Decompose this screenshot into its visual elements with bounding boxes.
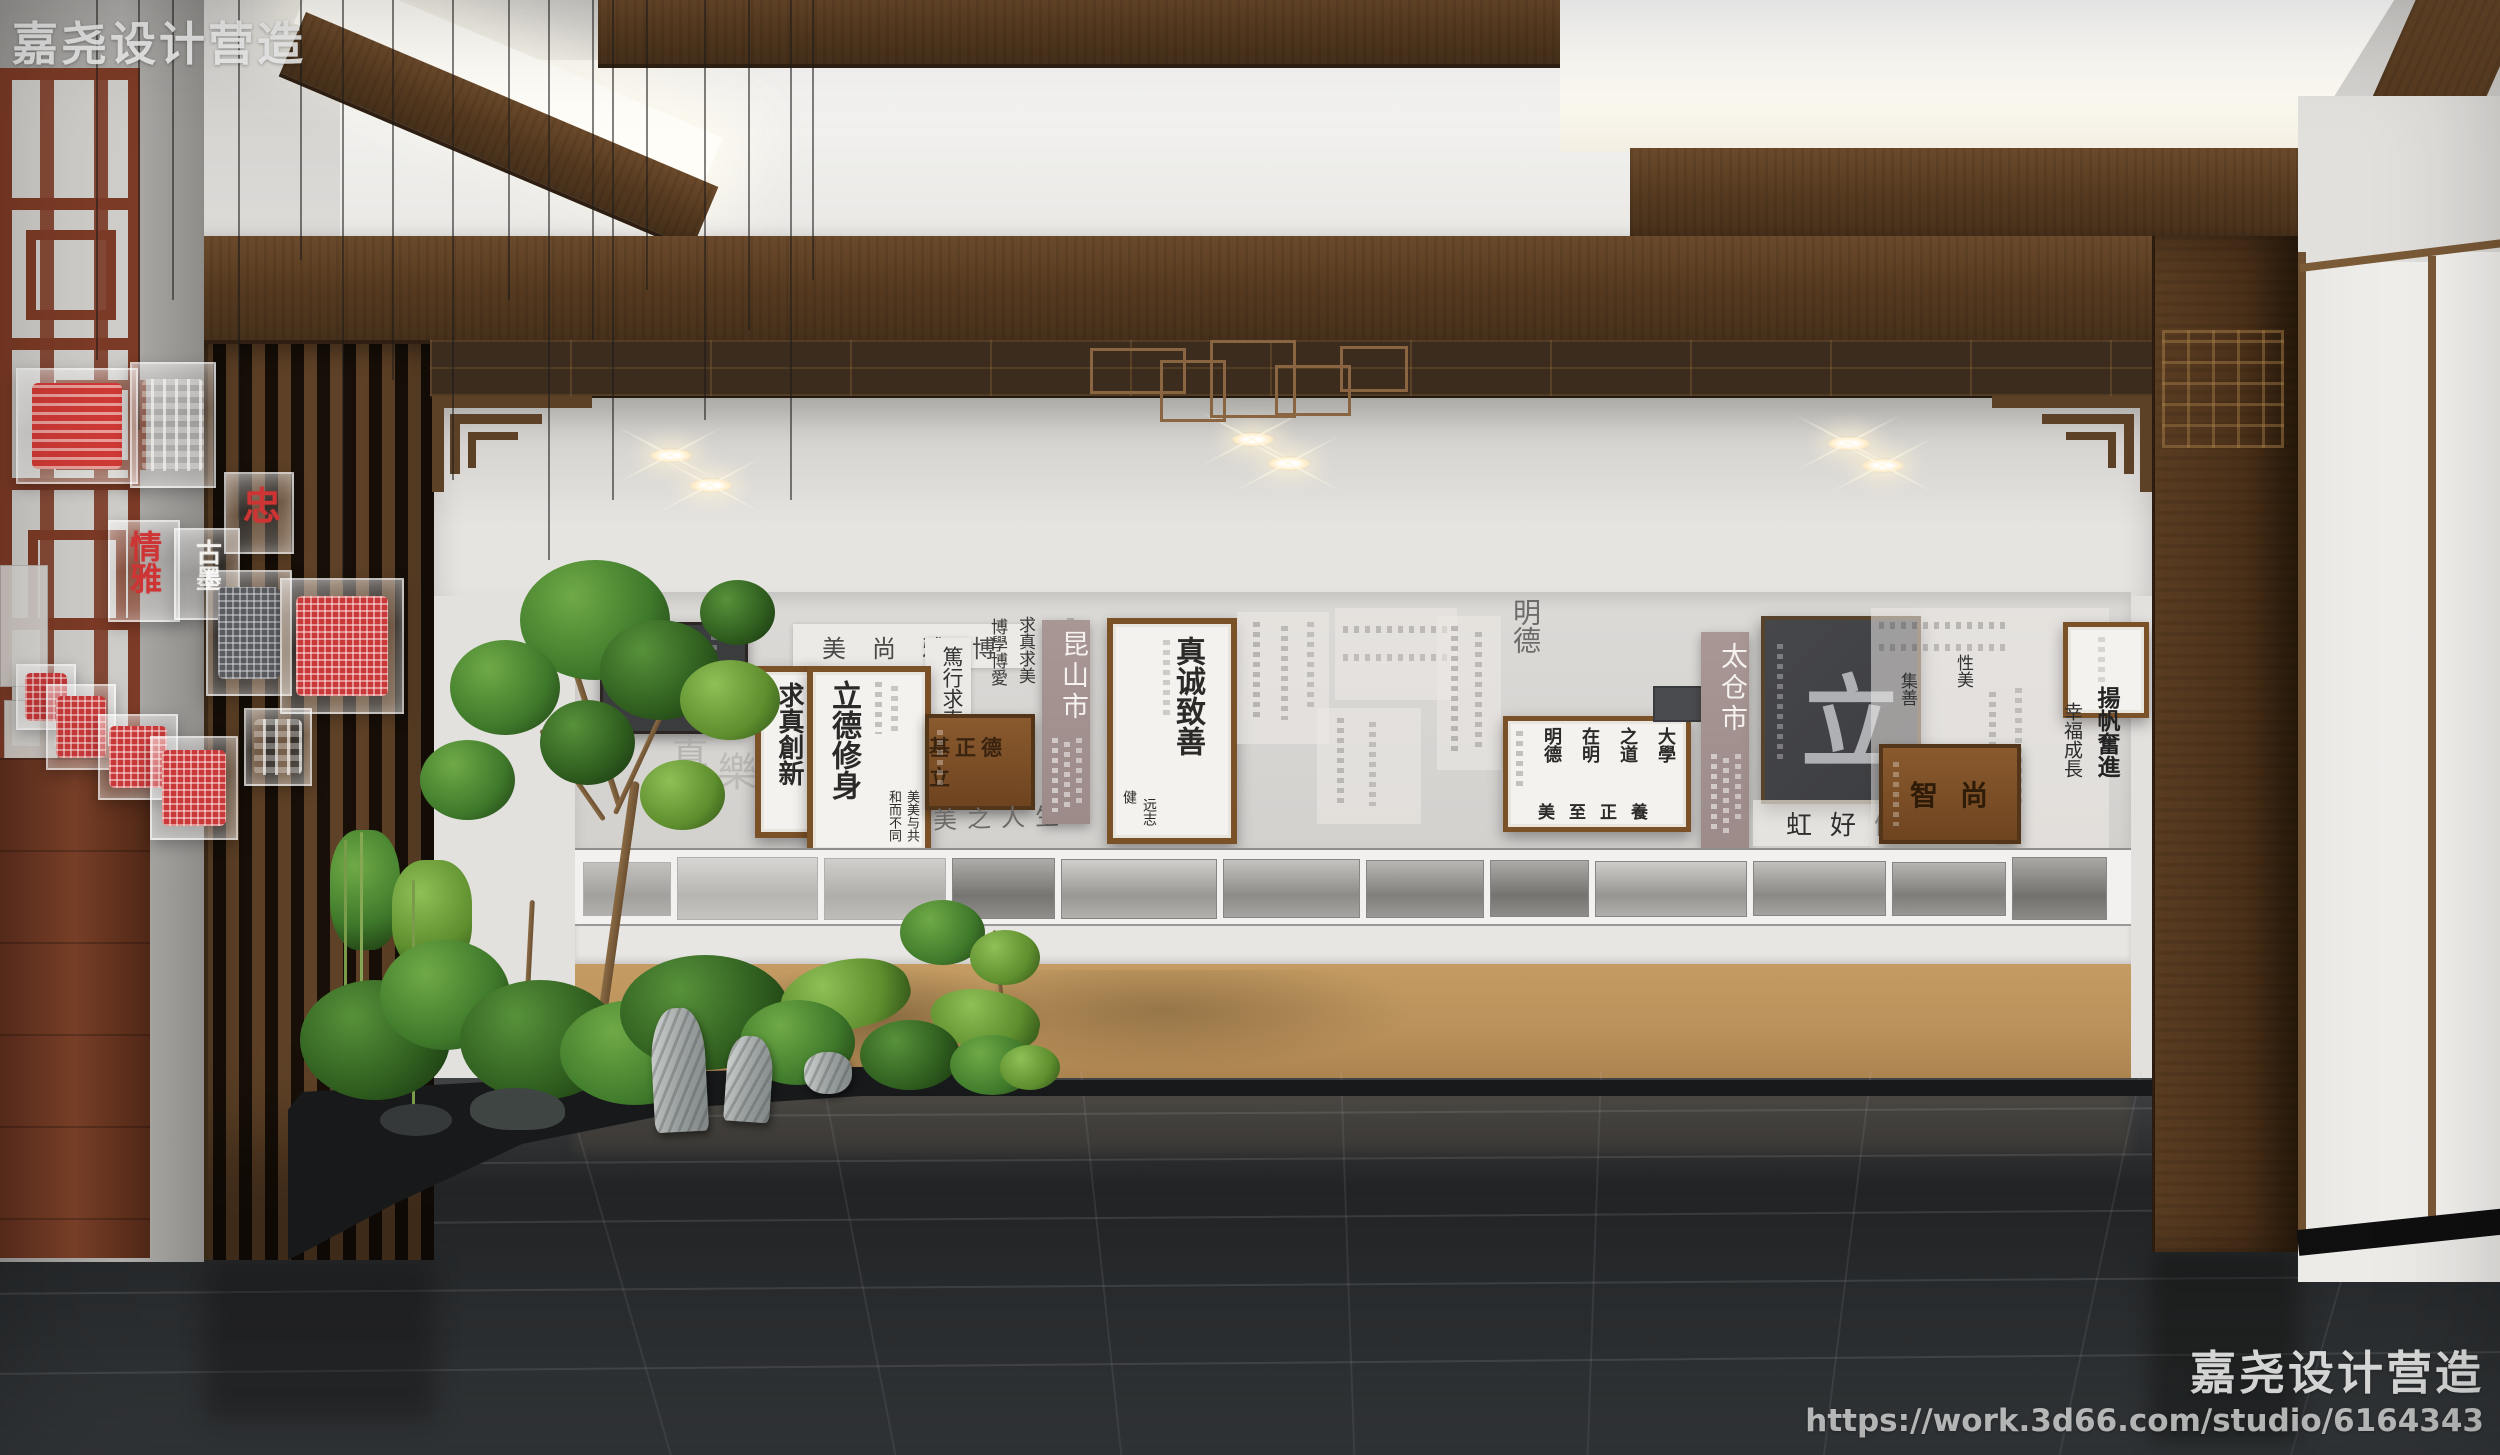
column-lattice-inset — [2162, 330, 2284, 448]
frame-lide-side2: 美美与共 — [902, 790, 921, 842]
red-block-seal — [162, 750, 226, 826]
sheet-boxue-col: 博學博愛 — [985, 618, 1010, 686]
faint-script — [1451, 626, 1458, 752]
watermark-bottom-right: 嘉尧设计营造 https://work.3d66.com/studio/6164… — [1805, 1337, 2484, 1439]
downlight — [1860, 458, 1906, 473]
photo-thumb — [1061, 859, 1217, 919]
tree-foliage — [680, 660, 780, 740]
daxue-col: 在明 — [1576, 727, 1602, 763]
frame-lide-main: 立德修身 — [821, 680, 865, 800]
seal-cube-qingya: 情雅 — [108, 520, 180, 622]
daxue-col: 明德 — [1538, 727, 1564, 763]
photo-strip — [575, 850, 2131, 927]
hanging-wire — [342, 0, 344, 585]
sign-kunshan: 昆山市 — [1042, 620, 1090, 824]
downlight — [688, 478, 734, 493]
faint-script — [1343, 654, 1447, 661]
hanging-wire — [790, 0, 792, 500]
calligraphy-wall: 真 樂 美尚雅博 博學博愛 求真求美 篤行求真 求真創新 立德修身 和而不同 美… — [575, 592, 2131, 848]
sign-small-text — [1064, 742, 1070, 812]
portal-beam — [156, 236, 2302, 344]
photo-thumb — [1490, 860, 1589, 917]
frame-lide-side1: 和而不同 — [884, 790, 903, 842]
seal-cube-script — [244, 708, 312, 786]
frame-zhencheng-main: 真诚致善 — [1165, 636, 1209, 756]
downlight — [1266, 456, 1312, 471]
red-block-seal — [296, 596, 387, 696]
sheet-jishan: 集善 — [1895, 672, 1920, 706]
hanging-wire — [612, 0, 614, 500]
faint-script — [1893, 762, 1899, 826]
seal-cube-large-red — [280, 578, 404, 714]
faint-script — [1163, 640, 1170, 720]
sign-small-text — [1052, 738, 1058, 812]
rock — [470, 1088, 565, 1130]
watermark-url: https://work.3d66.com/studio/6164343 — [1805, 1403, 2484, 1439]
tree-foliage — [540, 700, 635, 785]
corner-bracket-right — [1992, 396, 2152, 496]
faint-script — [2098, 637, 2105, 687]
sheet-cluster — [1317, 708, 1421, 824]
seal-zhong-text: 忠 — [232, 486, 287, 524]
daxue-col: 大學 — [1652, 727, 1678, 763]
tree-foliage — [640, 760, 725, 830]
hanging-wire — [392, 0, 394, 380]
sign-small-text — [1076, 738, 1082, 804]
panel-trim-v — [2298, 252, 2306, 1244]
faint-script — [937, 730, 943, 790]
sign-kunshan-text: 昆山市 — [1053, 630, 1092, 723]
white-band — [575, 926, 2131, 964]
corner-bracket-left — [432, 396, 592, 496]
seal-qingya-text: 情雅 — [121, 530, 167, 594]
faint-script — [1343, 626, 1447, 633]
cove-wood-top-band — [598, 0, 1662, 68]
tree-foliage — [700, 580, 775, 645]
daxue-bottom-row: 美至正養 — [1538, 798, 1662, 823]
downlight — [648, 448, 694, 463]
hanging-wire — [238, 0, 240, 520]
sign-small-text — [1723, 758, 1729, 834]
hanging-wire — [452, 0, 454, 480]
cove-glow-right — [1560, 0, 2420, 152]
faint-script — [1516, 731, 1523, 791]
lattice-rect — [1340, 346, 1408, 392]
plaque-lidezhengji: 基正德立 — [925, 714, 1035, 810]
photo-thumb — [1892, 862, 2006, 916]
seal-cube-pictorial — [16, 368, 138, 484]
lattice-bar-h — [12, 338, 128, 350]
red-pictorial-seal — [32, 383, 122, 468]
sheet-mingde: 明德 — [1505, 598, 1545, 654]
faint-script — [1879, 622, 2009, 629]
sheet-xingfu: 幸福成長 — [2059, 702, 2086, 778]
plant-shadow — [995, 970, 1415, 1070]
hanging-wire — [646, 0, 648, 290]
watermark-top-left: 嘉尧设计营造 — [12, 8, 306, 74]
sign-taicang-text: 太仓市 — [1712, 642, 1751, 735]
watermark-studio-name: 嘉尧设计营造 — [1805, 1337, 2484, 1403]
screen-reflection — [205, 1260, 435, 1420]
panel-white — [2436, 252, 2500, 1214]
sheet-qiuzhen-col: 求真求美 — [1013, 616, 1038, 684]
faint-script — [875, 682, 882, 734]
shrub — [860, 1020, 960, 1090]
plaque-lidezhengji-text: 基正德立 — [929, 732, 1031, 792]
daxue-col: 之道 — [1614, 727, 1640, 763]
faint-script — [1475, 632, 1482, 750]
photo-thumb — [1595, 861, 1747, 917]
photo-thumb — [1753, 861, 1886, 916]
tree-foliage — [450, 640, 560, 735]
frame-daxue: 大學 之道 在明 明德 美至正養 — [1503, 716, 1691, 832]
sheet-cluster — [1237, 612, 1329, 744]
faint-script — [1777, 644, 1783, 764]
soffit-lattice-ornament — [1090, 340, 1410, 420]
hanging-wire — [592, 0, 594, 340]
photo-thumb — [1366, 860, 1484, 918]
seal-cube-small — [150, 736, 238, 840]
sign-small-text — [1735, 754, 1741, 824]
faint-script — [891, 686, 898, 732]
sign-taicang: 太仓市 — [1701, 632, 1749, 848]
white-script-seal — [254, 719, 303, 775]
hanging-wire — [812, 0, 814, 280]
shrub — [1000, 1045, 1060, 1090]
photo-strip-band — [575, 848, 2131, 926]
panel-white — [2306, 262, 2428, 1240]
bamboo-leaves — [330, 830, 400, 950]
plaque-shangzhi: 智尚 — [1879, 744, 2021, 844]
left-cabinet — [0, 758, 150, 1258]
panel-trim-v — [2428, 256, 2436, 1224]
exhibition-hall-render: 真 樂 美尚雅博 博學博愛 求真求美 篤行求真 求真創新 立德修身 和而不同 美… — [0, 0, 2500, 1455]
lattice-square — [26, 230, 116, 320]
tree-foliage — [420, 740, 515, 820]
frame-zhencheng-small2: 健 — [1119, 790, 1139, 804]
frame-lide: 立德修身 和而不同 美美与共 — [807, 666, 931, 856]
sheet-xingmei: 性美 — [1951, 654, 1976, 688]
stone — [804, 1052, 852, 1094]
photo-thumb — [677, 857, 818, 920]
sheet-cluster — [1437, 616, 1501, 770]
faint-script — [1307, 622, 1314, 710]
tree-foliage — [970, 930, 1040, 985]
frame-zhencheng-small1: 远志 — [1139, 798, 1159, 826]
white-script-seal — [142, 379, 204, 472]
rock — [380, 1104, 452, 1136]
right-wall-upper — [2298, 96, 2500, 264]
frame-daxue-cols: 大學 之道 在明 明德 — [1538, 727, 1678, 763]
sign-small-text — [1711, 754, 1717, 834]
sheet-yangfan: 揚帆奮進 — [2089, 686, 2123, 778]
frame-zhencheng: 真诚致善 远志 健 — [1107, 618, 1237, 844]
standing-stone — [723, 1035, 775, 1124]
lattice-bar-h — [12, 198, 128, 210]
seal-cube-script — [130, 362, 216, 488]
faint-script — [1369, 722, 1376, 806]
faint-script — [1879, 644, 2009, 651]
faint-script — [1281, 626, 1288, 720]
plaque-shangzhi-text: 智尚 — [1910, 774, 2010, 814]
photo-thumb — [1223, 859, 1360, 918]
hanging-wire — [508, 0, 510, 300]
gray-block-seal — [218, 587, 280, 680]
hanging-wire — [704, 0, 706, 420]
faint-script — [1253, 622, 1260, 722]
photo-thumb — [2012, 857, 2107, 920]
faint-script — [1337, 718, 1344, 808]
hanging-wire — [548, 0, 550, 560]
hanging-wire — [748, 0, 750, 330]
